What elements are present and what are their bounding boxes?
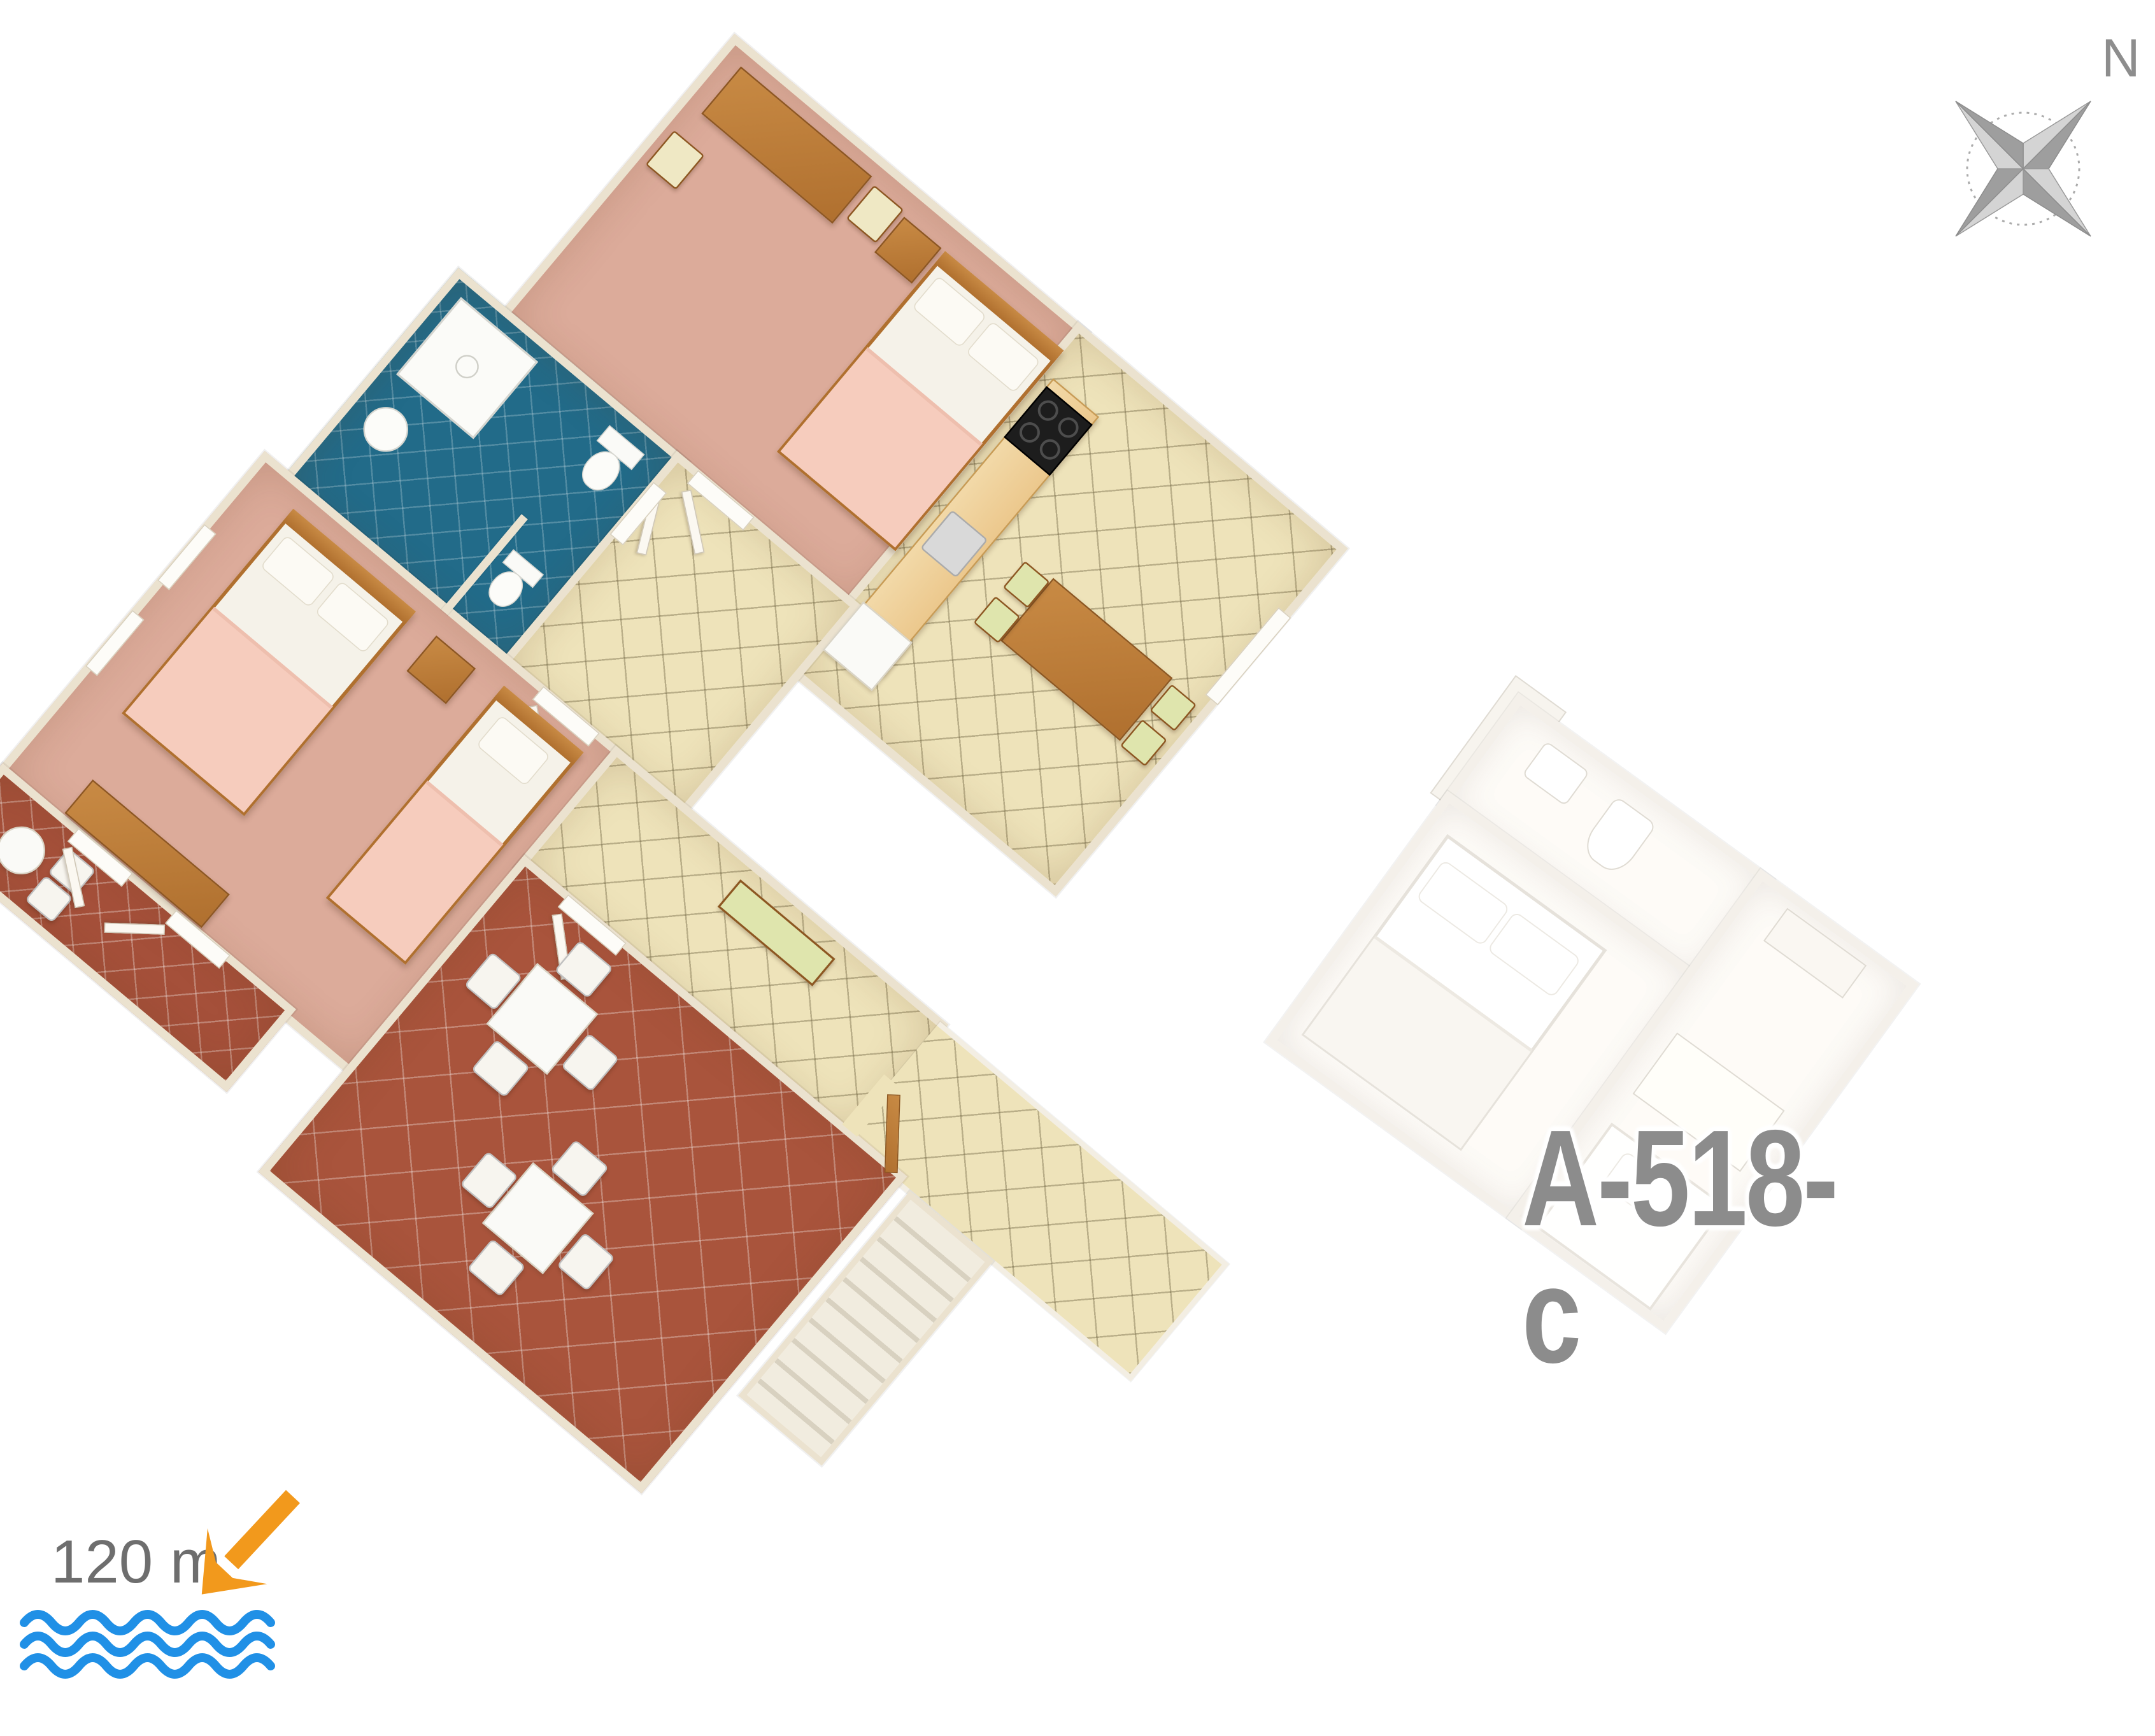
stove-burner [1034,396,1062,425]
stove-burner [1035,435,1064,464]
shower-drain [450,350,483,383]
sea-direction-arrow-icon [172,1477,323,1622]
floor-plan-scene: A-518-c N 120 m [0,0,2155,1698]
bed-pillow [1416,859,1511,946]
wave-line [24,1614,271,1631]
wave-line [24,1636,271,1653]
bed-pillow [1487,911,1582,998]
compass-rose-icon: N [1904,16,2152,264]
unit-label: A-518-c [1522,1109,1889,1383]
entry-door-leaf [885,1094,900,1173]
stove-burner [1015,418,1044,446]
compass-star [1956,101,2091,236]
sea-graphics [19,1477,388,1694]
apartment-unit-main [0,0,1416,1553]
wave-line [24,1658,271,1674]
sea-waves-icon [24,1614,271,1674]
compass-north-label: N [2102,28,2140,88]
stove-burner [1054,413,1083,442]
balcony-door-leaf [104,923,165,935]
